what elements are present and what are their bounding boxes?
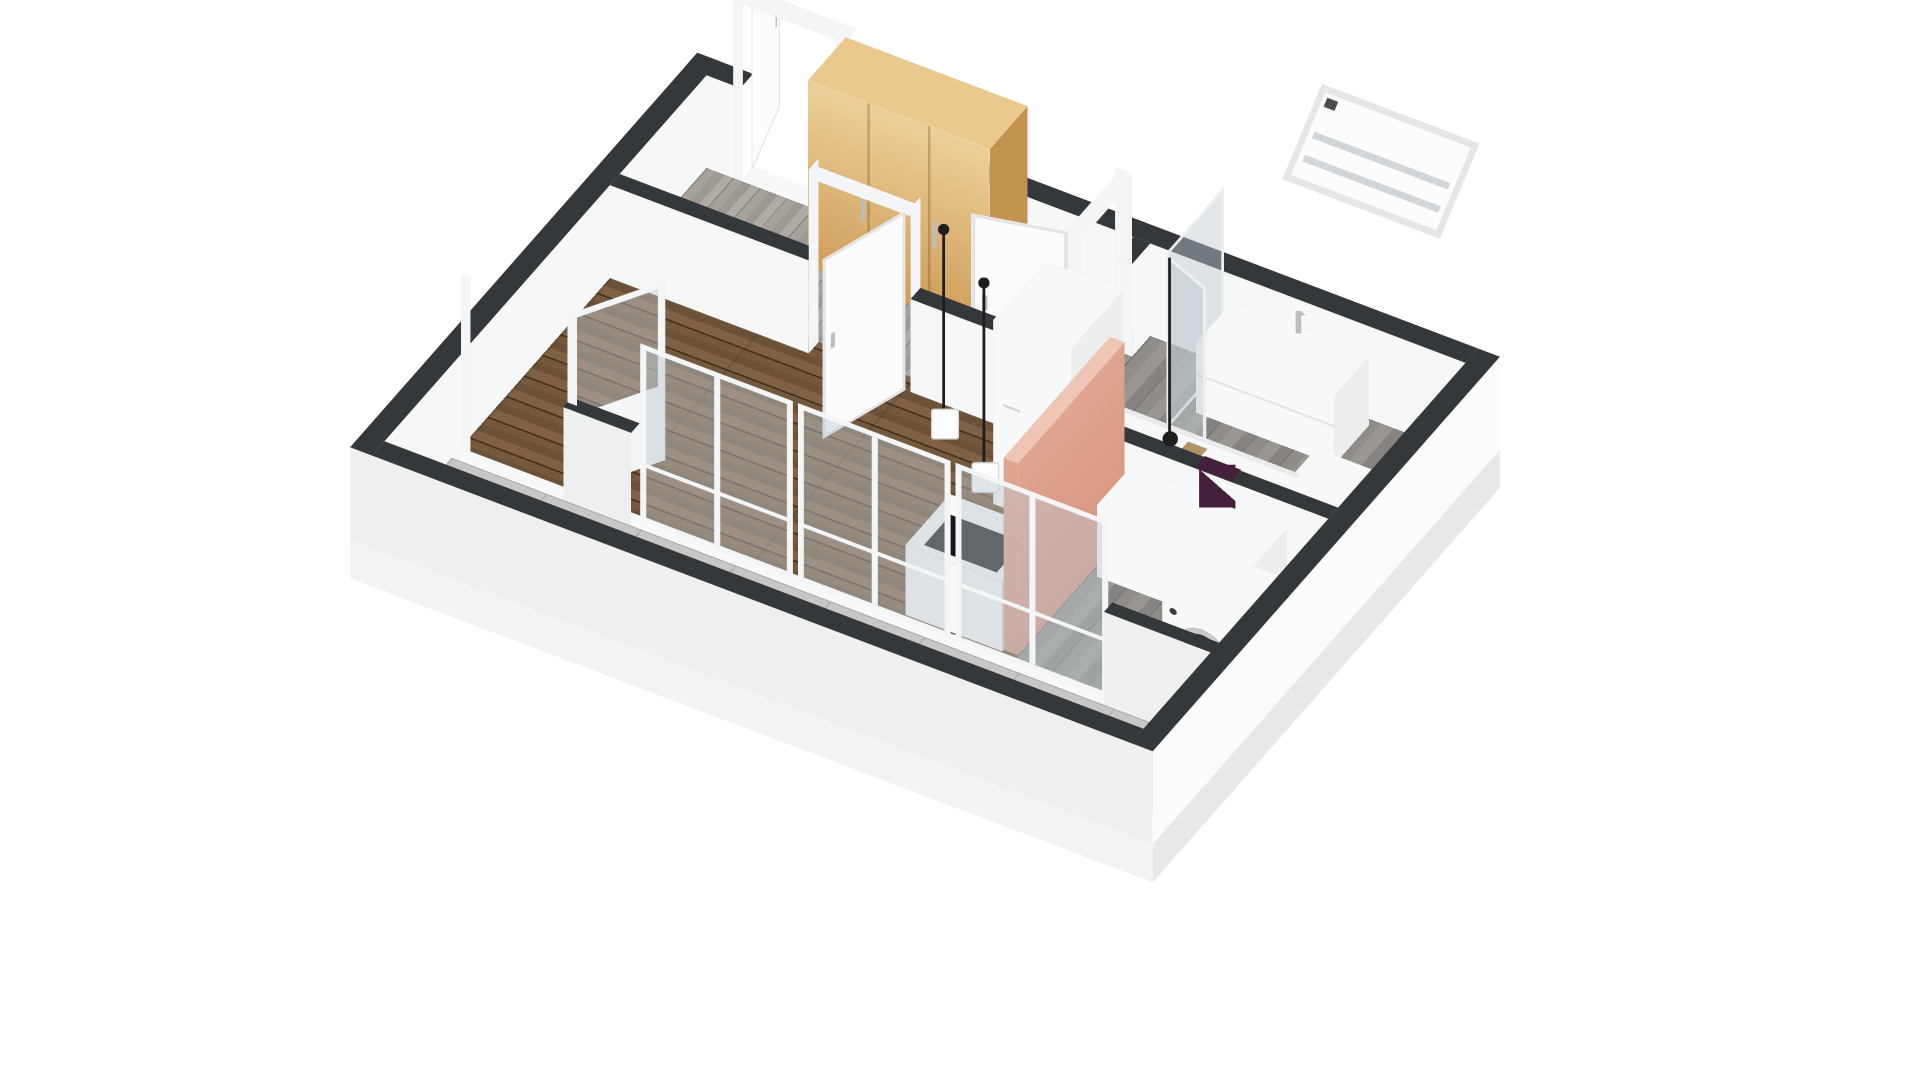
pendant-cord [1168, 258, 1171, 440]
window-mullion [714, 377, 720, 546]
entrance-door-handle [776, 11, 778, 29]
bath-wall-face-a [1132, 243, 1150, 357]
mirror-shelf-1 [1312, 131, 1450, 189]
entrance-threshold [740, 166, 847, 216]
top-wall-cut-top-left [685, 53, 753, 88]
pendant-cord [983, 280, 986, 462]
wardrobe-door-gap-2 [928, 126, 930, 313]
tall-cabinet-handle [1003, 404, 1020, 413]
floorplan-scene [0, 0, 1920, 1080]
living-door-jamb-right [911, 197, 921, 392]
window-mullion [1029, 496, 1035, 665]
top-wall-inner-face-a [685, 67, 741, 181]
balcony-door-jamb-left [461, 273, 471, 458]
vanity-side [1334, 356, 1369, 466]
pendant-white-shade [931, 409, 959, 440]
faucet-spout [1296, 311, 1310, 315]
wardrobe-top [808, 37, 1028, 149]
bath-wall-cut-top-a [1115, 237, 1150, 264]
washing-machine-control-dot [1169, 607, 1176, 616]
vanity-top [1196, 304, 1369, 396]
hall-wall-cut-top-left [610, 174, 819, 260]
pendant-bulb [978, 277, 989, 288]
entrance-jamb-right [835, 33, 845, 221]
wardrobe-handle-2 [933, 220, 937, 249]
pendant-bulb [938, 224, 949, 235]
living-door-leaf-open [823, 211, 906, 440]
floorplan-image [0, 0, 1920, 1080]
floating-mirror-cabinet [1282, 84, 1479, 239]
living-door-handle [831, 332, 835, 349]
mirror-shelf-2 [1302, 155, 1440, 213]
entrance-jamb-left [733, 0, 743, 182]
top-wall-cut-top-right [835, 110, 1478, 363]
entrance-door-leaf-open [751, 0, 780, 173]
living-door-jamb-left [809, 158, 819, 353]
living-door-lintel [809, 167, 921, 217]
window-mullion [872, 436, 878, 605]
top-wall-inner-face-b [835, 124, 1465, 456]
mirror-bracket [1324, 98, 1339, 111]
entrance-lintel [733, 0, 857, 43]
pendant-black-bulb [1163, 431, 1178, 446]
faucet-stem [1296, 314, 1302, 334]
pendant-cord [942, 227, 945, 409]
